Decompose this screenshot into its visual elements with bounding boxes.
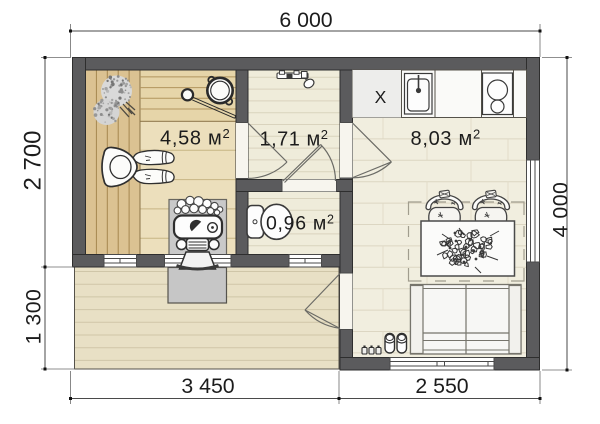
svg-text:2 550: 2 550	[415, 374, 468, 398]
svg-text:2 700: 2 700	[20, 130, 47, 190]
svg-text:3 450: 3 450	[181, 374, 234, 398]
svg-text:6 000: 6 000	[279, 8, 332, 32]
svg-text:X: X	[375, 87, 387, 107]
svg-text:1 300: 1 300	[22, 289, 46, 345]
svg-text:4,58 м2: 4,58 м2	[160, 126, 230, 150]
svg-text:4 000: 4 000	[549, 182, 573, 238]
svg-text:8,03 м2: 8,03 м2	[411, 127, 481, 151]
svg-text:1,71 м2: 1,71 м2	[260, 127, 329, 151]
svg-text:0,96 м2: 0,96 м2	[266, 212, 335, 234]
